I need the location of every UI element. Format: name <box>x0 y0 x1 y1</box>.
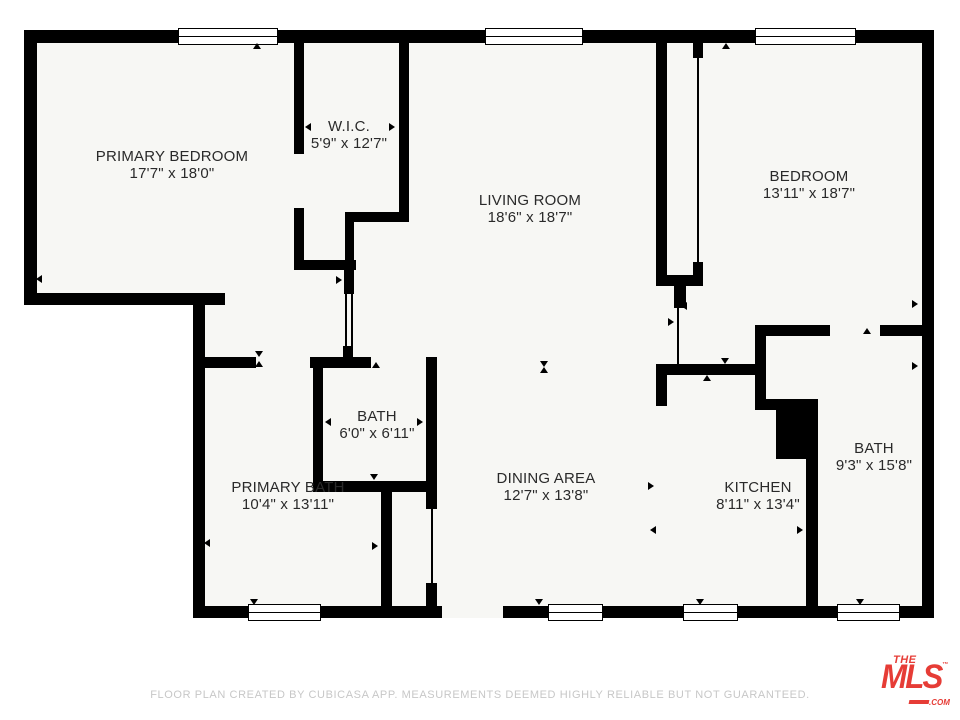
room-name: PRIMARY BATH <box>231 479 344 496</box>
door-marker-icon <box>912 362 918 370</box>
window-pane-line <box>486 36 582 38</box>
room-dims: 6'0" x 6'11" <box>339 425 414 442</box>
door-marker-icon <box>372 362 380 368</box>
window-pane-line <box>549 612 602 614</box>
room-name: BATH <box>836 440 912 457</box>
door-marker-icon <box>696 599 704 605</box>
wall <box>776 399 818 459</box>
room-dims: 9'3" x 15'8" <box>836 457 912 474</box>
room-label-wic: W.I.C. 5'9" x 12'7" <box>311 118 387 152</box>
room-label-kitchen: KITCHEN 8'11" x 13'4" <box>716 479 800 513</box>
room-dims: 10'4" x 13'11" <box>231 496 344 513</box>
window-pane-line <box>838 612 899 614</box>
window-icon <box>548 604 603 621</box>
wall-opening-line <box>677 308 679 366</box>
room-label-living-room: LIVING ROOM 18'6" x 18'7" <box>479 192 581 226</box>
door-marker-icon <box>253 43 261 49</box>
door-marker-icon <box>757 362 763 370</box>
room-label-primary-bedroom: PRIMARY BEDROOM 17'7" x 18'0" <box>96 148 248 182</box>
window-pane-line <box>179 36 277 38</box>
room-name: KITCHEN <box>716 479 800 496</box>
door-marker-icon <box>650 526 656 534</box>
door-marker-icon <box>204 539 210 547</box>
door-marker-icon <box>255 361 263 367</box>
room-name: PRIMARY BEDROOM <box>96 148 248 165</box>
wall <box>346 212 409 222</box>
opening-marker-icon <box>540 367 548 373</box>
room-dims: 18'6" x 18'7" <box>479 209 581 226</box>
door-marker-icon <box>389 123 395 131</box>
wall <box>204 357 256 368</box>
door-marker-icon <box>370 474 378 480</box>
wall <box>399 40 409 222</box>
door-marker-icon <box>250 599 258 605</box>
wall <box>345 212 354 265</box>
room-label-dining-area: DINING AREA 12'7" x 13'8" <box>497 470 596 504</box>
wall <box>693 42 703 58</box>
logo-tm: ™ <box>942 662 948 668</box>
wall <box>381 481 392 608</box>
door-marker-icon <box>372 542 378 550</box>
wall <box>755 325 830 336</box>
door-marker-icon <box>668 318 674 326</box>
door-marker-icon <box>863 328 871 334</box>
wall <box>656 364 667 406</box>
door-marker-icon <box>325 418 331 426</box>
room-label-bedroom: BEDROOM 13'11" x 18'7" <box>763 168 855 202</box>
logo-mls: MLS <box>881 658 942 697</box>
door-marker-icon <box>703 375 711 381</box>
door-marker-icon <box>721 358 729 364</box>
wall <box>426 357 437 509</box>
wall-opening-line <box>431 509 433 585</box>
wall-opening-line <box>345 294 347 348</box>
door-marker-icon <box>417 418 423 426</box>
door-marker-icon <box>255 351 263 357</box>
window-icon <box>248 604 321 621</box>
room-dims: 5'9" x 12'7" <box>311 135 387 152</box>
wall <box>344 270 354 294</box>
wall <box>310 357 371 368</box>
room-label-bath-2: BATH 9'3" x 15'8" <box>836 440 912 474</box>
wall <box>656 42 667 286</box>
themls-logo: THE MLS ™ .COM <box>876 653 958 717</box>
room-name: W.I.C. <box>311 118 387 135</box>
window-pane-line <box>756 36 855 38</box>
door-marker-icon <box>336 276 342 284</box>
wall-opening-line <box>351 294 353 348</box>
door-marker-icon <box>856 599 864 605</box>
room-label-primary-bath: PRIMARY BATH 10'4" x 13'11" <box>231 479 344 513</box>
wall <box>426 583 437 608</box>
door-marker-icon <box>36 275 42 283</box>
door-marker-icon <box>535 599 543 605</box>
room-name: LIVING ROOM <box>479 192 581 209</box>
logo-underline <box>909 700 930 704</box>
wall <box>880 325 934 336</box>
wall <box>294 40 304 154</box>
room-name: DINING AREA <box>497 470 596 487</box>
room-name: BEDROOM <box>763 168 855 185</box>
door-marker-icon <box>681 302 687 310</box>
room-label-bath: BATH 6'0" x 6'11" <box>339 408 414 442</box>
room-dims: 17'7" x 18'0" <box>96 165 248 182</box>
footer-disclaimer: FLOOR PLAN CREATED BY CUBICASA APP. MEAS… <box>0 689 960 701</box>
wall <box>313 368 323 484</box>
wall <box>24 30 37 305</box>
window-icon <box>178 28 278 45</box>
floorplan: PRIMARY BEDROOM 17'7" x 18'0" W.I.C. 5'9… <box>0 0 960 720</box>
wall <box>806 458 818 618</box>
window-icon <box>755 28 856 45</box>
wall <box>656 364 756 375</box>
floor-area <box>193 293 934 618</box>
door-marker-icon <box>722 43 730 49</box>
wall <box>922 30 934 618</box>
room-dims: 13'11" x 18'7" <box>763 185 855 202</box>
window-icon <box>683 604 738 621</box>
window-icon <box>837 604 900 621</box>
door-marker-icon <box>912 300 918 308</box>
room-dims: 12'7" x 13'8" <box>497 487 596 504</box>
window-pane-line <box>249 612 320 614</box>
wall <box>693 262 703 286</box>
window-pane-line <box>684 612 737 614</box>
logo-com: .COM <box>929 698 950 707</box>
room-name: BATH <box>339 408 414 425</box>
room-dims: 8'11" x 13'4" <box>716 496 800 513</box>
door-marker-icon <box>797 526 803 534</box>
door-marker-icon <box>648 482 654 490</box>
wall-opening-line <box>697 58 699 264</box>
wall <box>193 293 205 618</box>
window-icon <box>485 28 583 45</box>
